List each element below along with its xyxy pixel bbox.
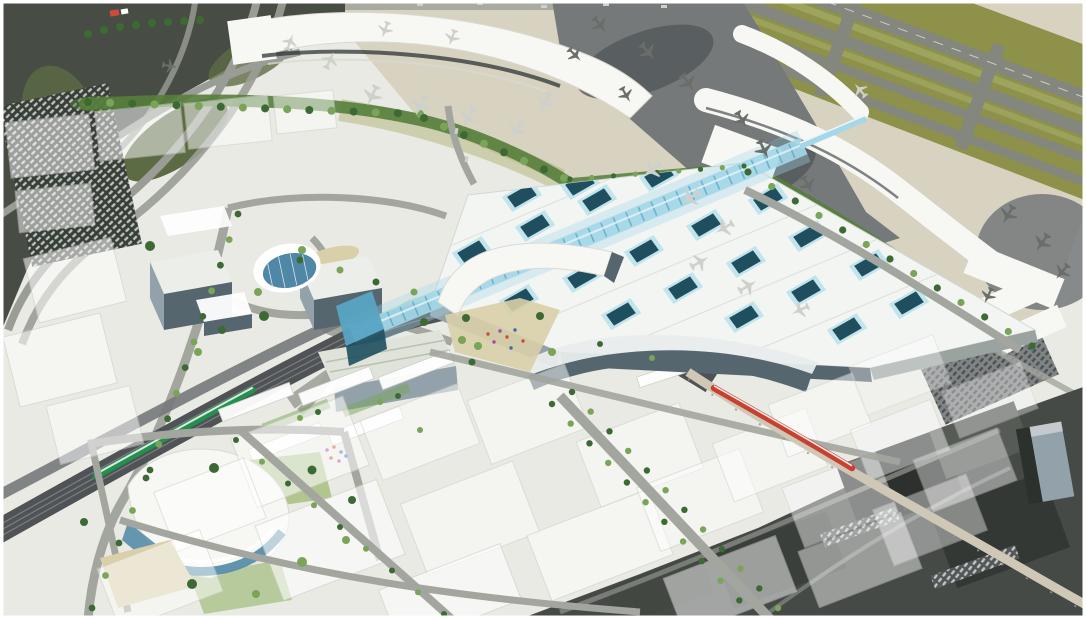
aerial-rendering (0, 0, 1086, 619)
scene-svg (0, 0, 1086, 619)
